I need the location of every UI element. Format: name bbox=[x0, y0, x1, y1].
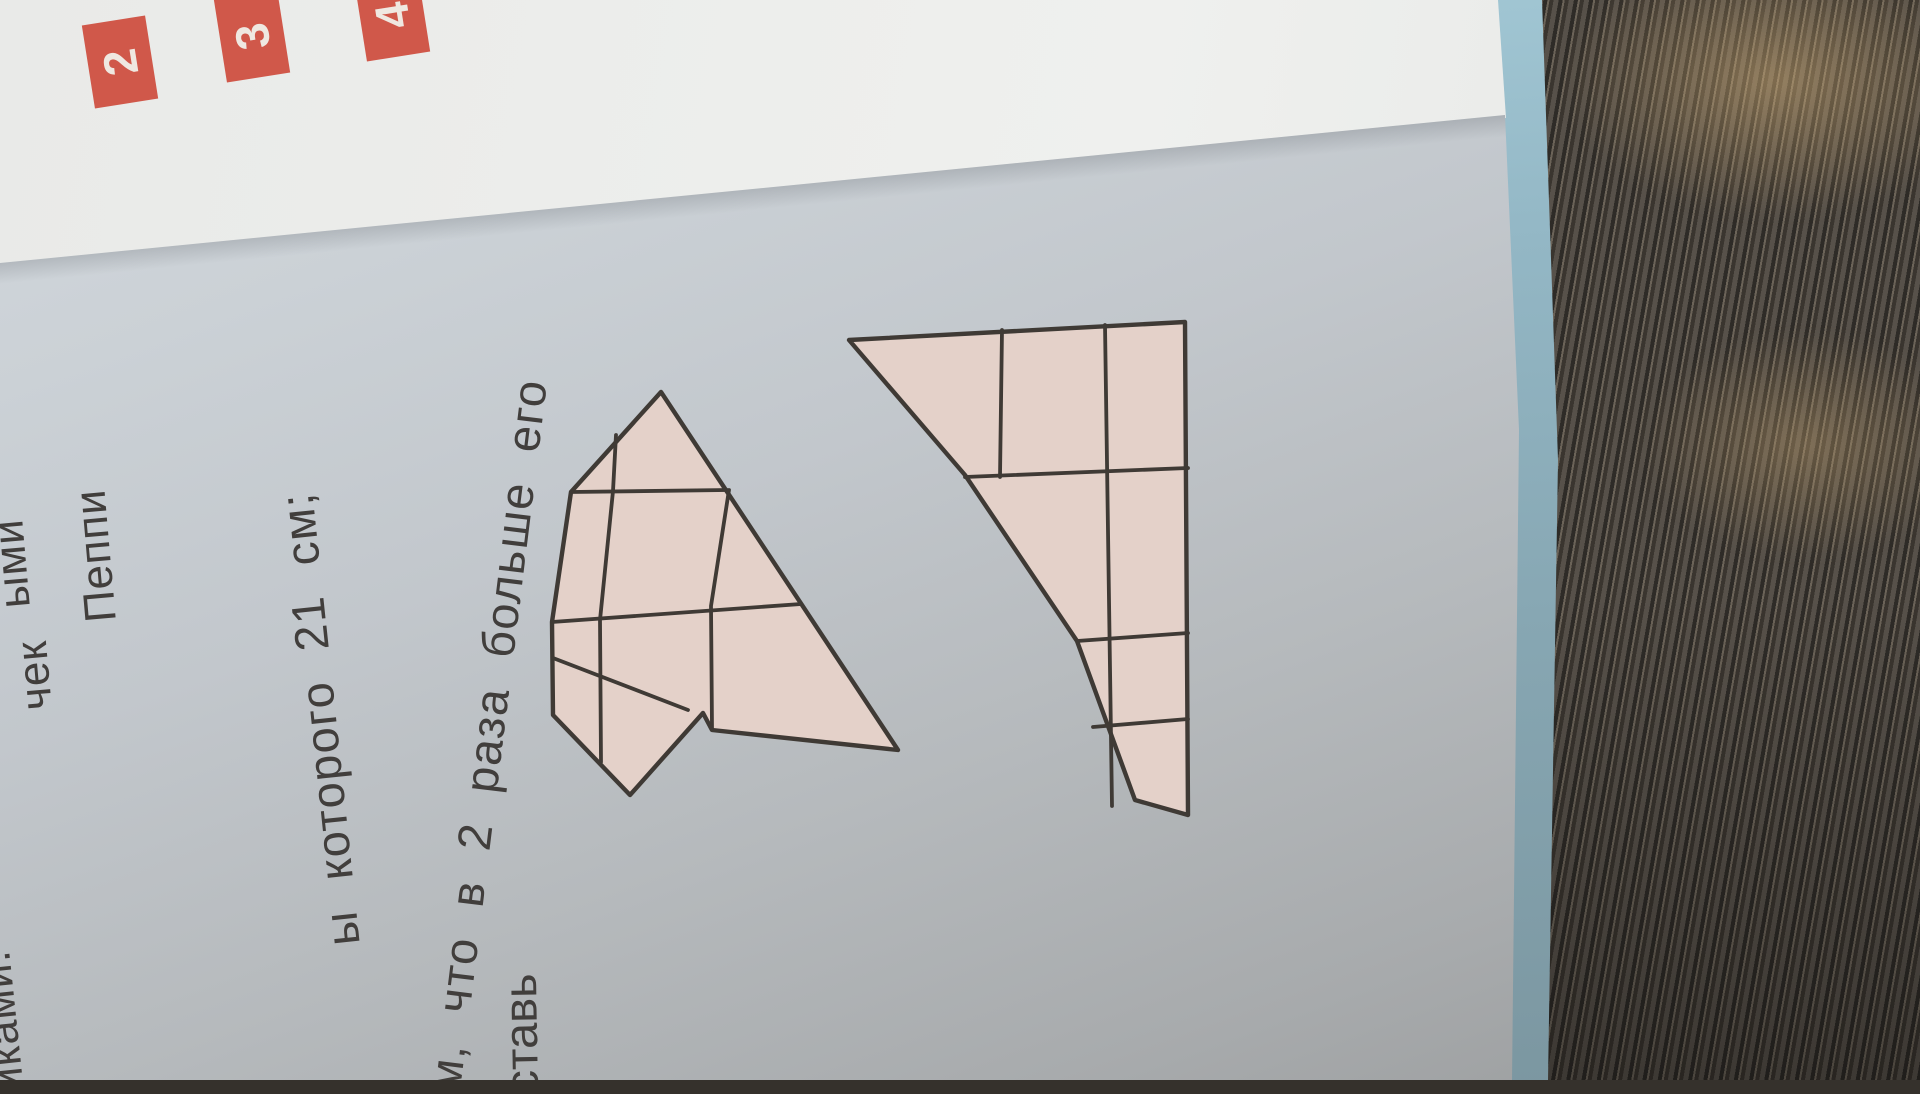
figure-grid-line bbox=[571, 490, 727, 492]
photo-scene: 2 3 4 ыми Пеппи чек иками. ы которого 21… bbox=[0, 0, 1920, 1080]
figure-grid-line bbox=[1000, 330, 1002, 477]
grid-figure bbox=[0, 0, 1920, 1080]
figure-right-part bbox=[849, 322, 1188, 815]
